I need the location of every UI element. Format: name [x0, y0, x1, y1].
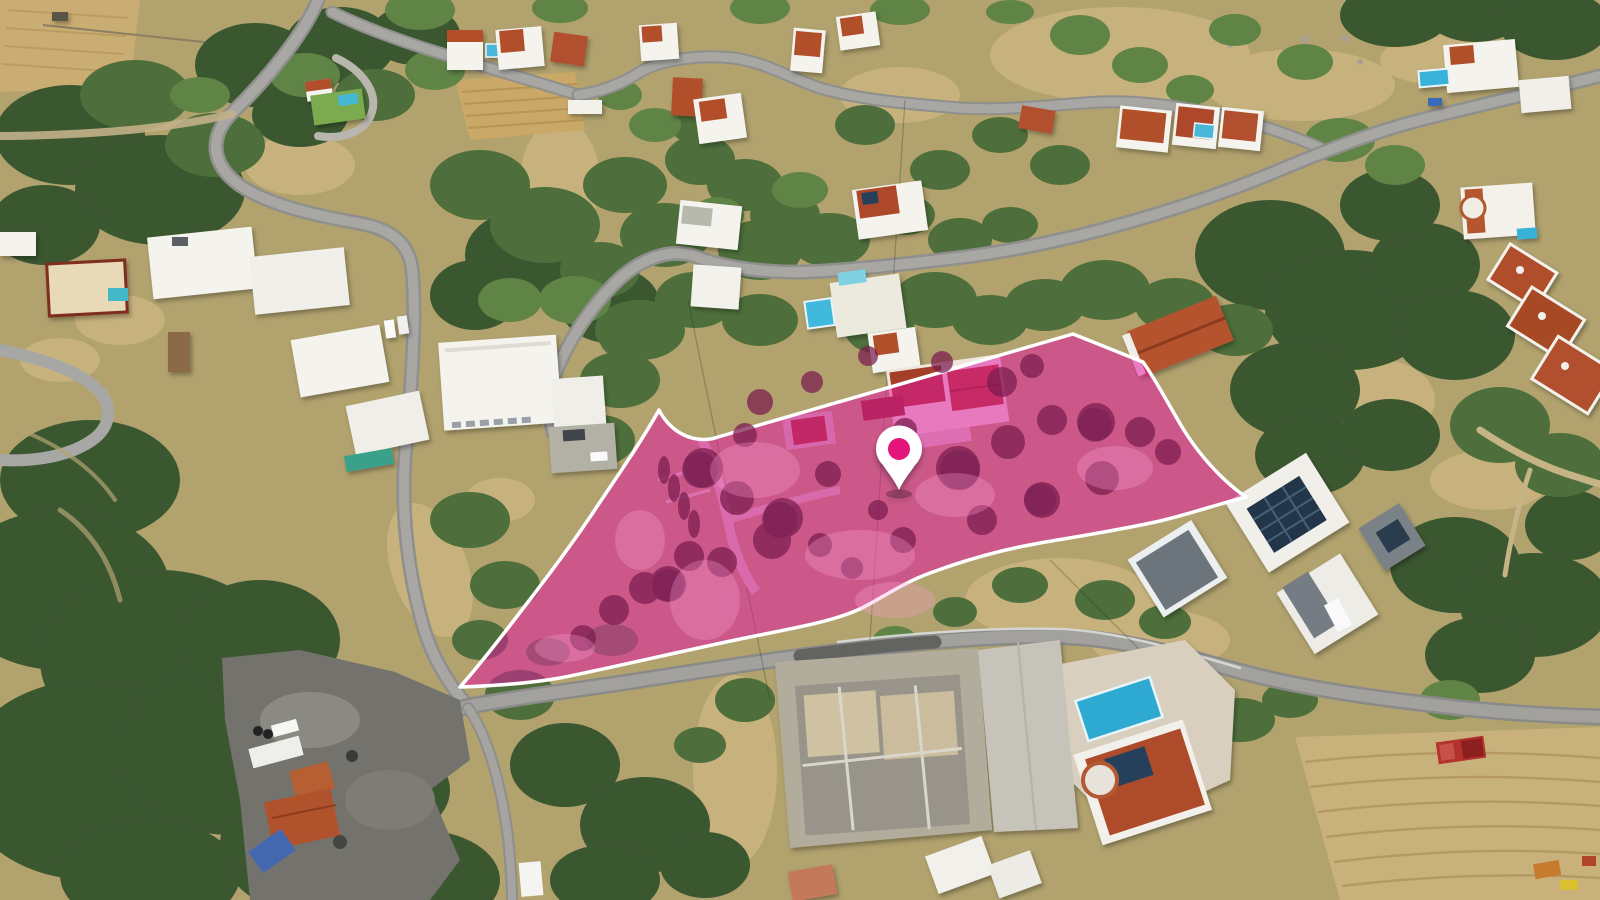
white-truck [519, 861, 544, 897]
round-tower-villa [1460, 183, 1537, 240]
parked-car [563, 429, 586, 442]
house-above-parcel [852, 180, 928, 239]
construction-site [775, 640, 1078, 848]
aerial-photo-canvas [0, 0, 1600, 900]
aerial-photo [0, 0, 1600, 900]
pin-dot [888, 438, 910, 460]
pin-shadow [886, 490, 912, 499]
